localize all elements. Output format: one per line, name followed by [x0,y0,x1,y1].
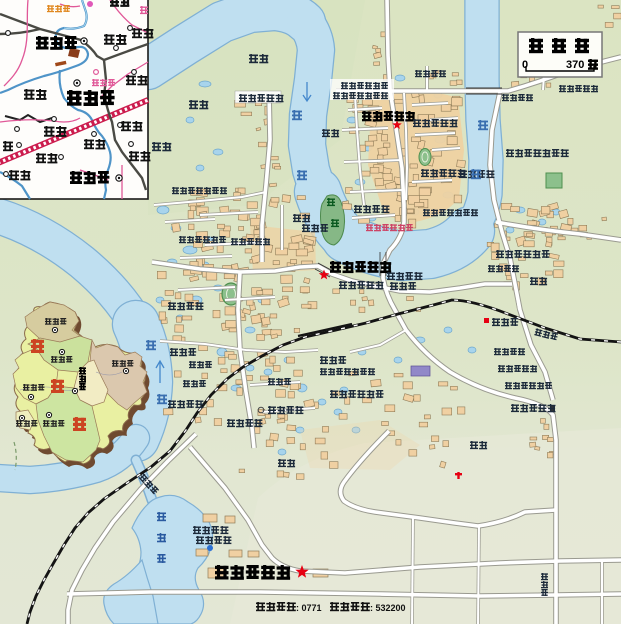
svg-text:: 532200: : 532200 [370,603,406,613]
svg-text:370: 370 [566,59,584,71]
svg-text:0: 0 [522,59,528,71]
svg-text:: 0771: : 0771 [296,603,322,613]
